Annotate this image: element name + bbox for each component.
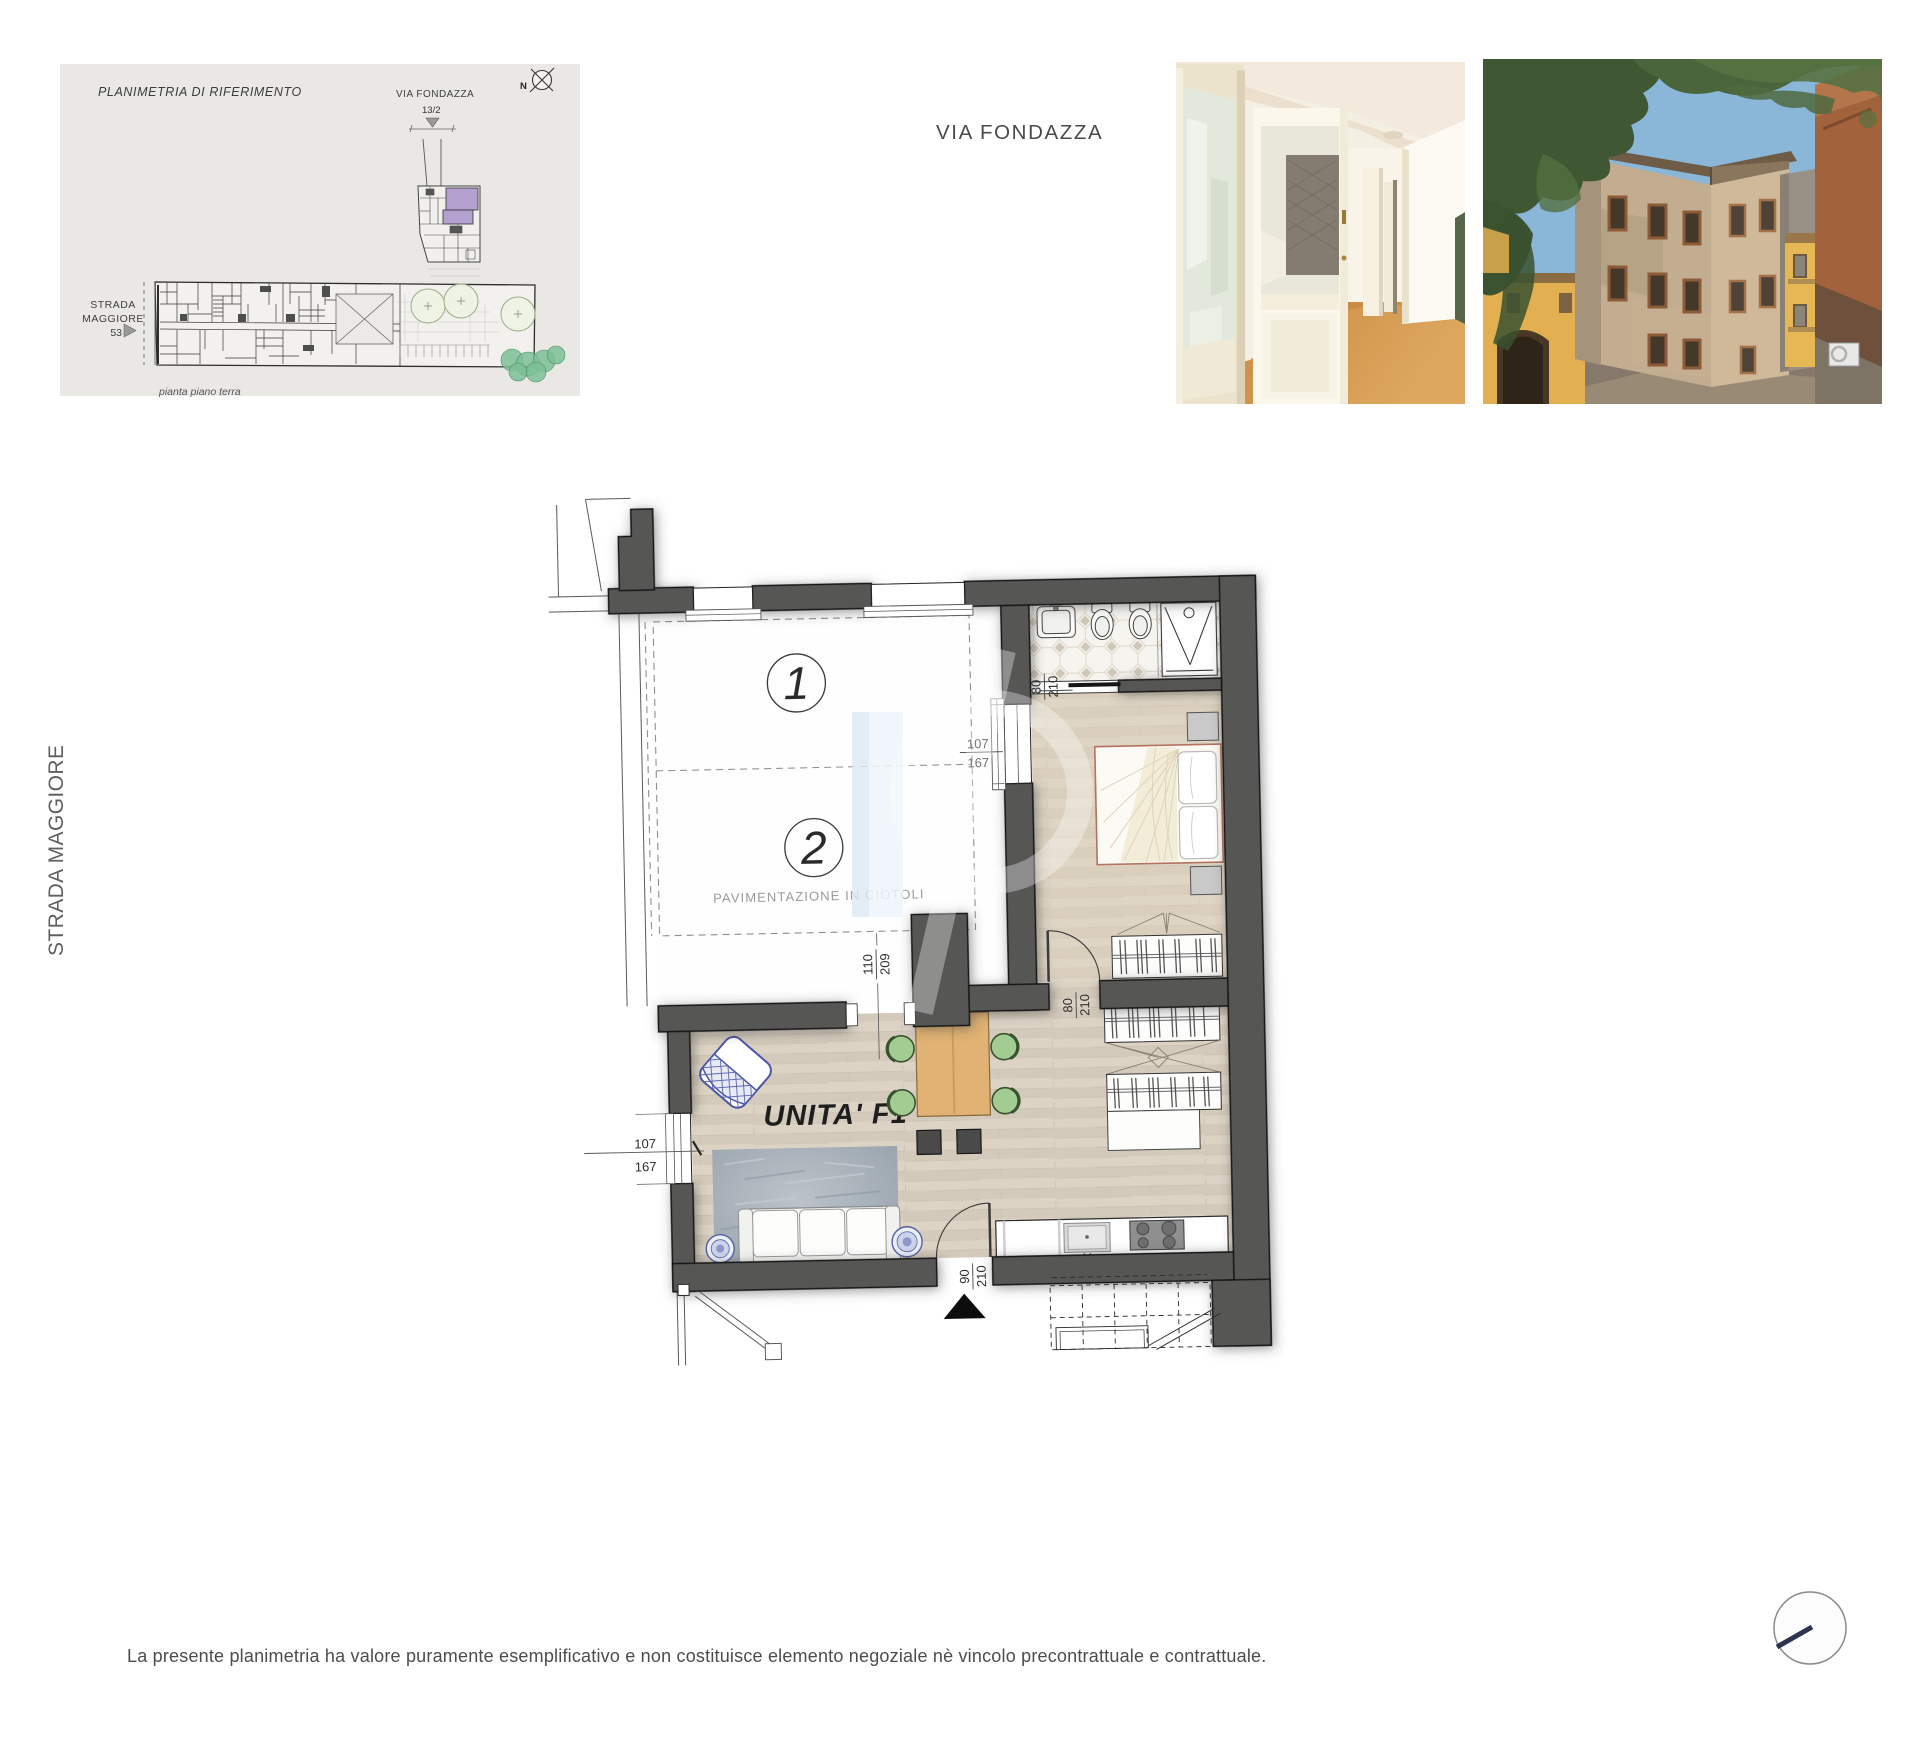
svg-text:pianta piano terra: pianta piano terra: [158, 386, 241, 398]
svg-text:80: 80: [1060, 998, 1075, 1013]
svg-text:N: N: [520, 81, 527, 92]
svg-text:13/2: 13/2: [422, 105, 441, 116]
svg-text:80: 80: [1028, 680, 1043, 695]
svg-text:VIA FONDAZZA: VIA FONDAZZA: [936, 121, 1103, 144]
svg-text:90: 90: [957, 1269, 972, 1284]
svg-text:MAGGIORE: MAGGIORE: [82, 313, 144, 325]
svg-text:167: 167: [635, 1159, 657, 1174]
svg-text:STRADA MAGGIORE: STRADA MAGGIORE: [45, 745, 68, 956]
svg-text:PLANIMETRIA DI RIFERIMENTO: PLANIMETRIA DI RIFERIMENTO: [98, 85, 302, 99]
svg-text:1: 1: [783, 657, 810, 710]
svg-text:107: 107: [634, 1136, 656, 1151]
svg-text:La presente planimetria ha val: La presente planimetria ha valore purame…: [127, 1646, 1266, 1666]
svg-text:210: 210: [1077, 994, 1092, 1016]
svg-text:VIA FONDAZZA: VIA FONDAZZA: [396, 89, 474, 100]
svg-text:UNITA' F1: UNITA' F1: [763, 1098, 908, 1133]
svg-text:2: 2: [799, 821, 827, 874]
svg-text:209: 209: [877, 953, 892, 975]
svg-text:110: 110: [860, 954, 875, 975]
svg-text:210: 210: [974, 1265, 989, 1287]
svg-text:STRADA: STRADA: [90, 299, 136, 311]
svg-text:210: 210: [1045, 676, 1060, 698]
svg-text:53: 53: [110, 327, 122, 339]
